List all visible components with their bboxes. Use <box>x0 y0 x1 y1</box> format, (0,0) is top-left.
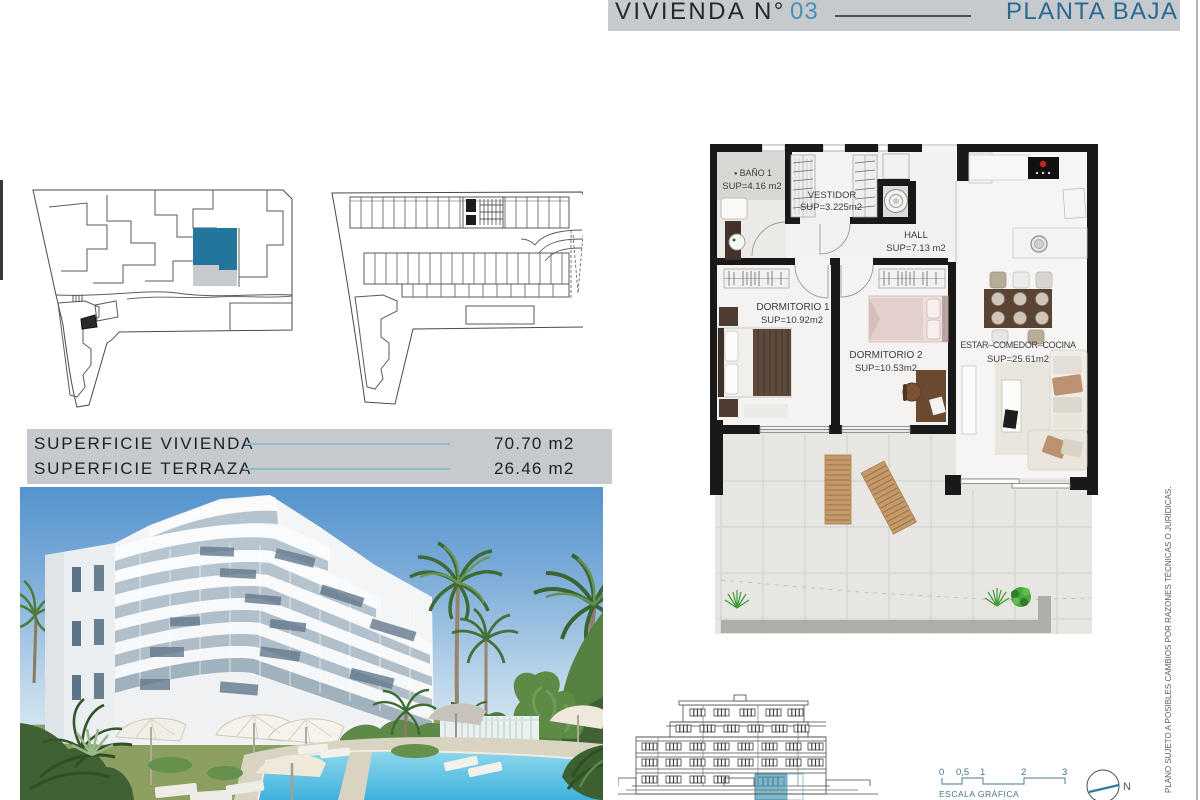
svg-text:N: N <box>1123 781 1131 793</box>
svg-text:ESCALA GRÁFICA: ESCALA GRÁFICA <box>939 789 1019 799</box>
svg-text:0: 0 <box>939 767 944 778</box>
svg-text:ESTAR–COMEDOR–COCINA: ESTAR–COMEDOR–COCINA <box>960 340 1076 350</box>
svg-text:0,5: 0,5 <box>956 767 969 778</box>
svg-text:▪ BAÑO 1: ▪ BAÑO 1 <box>734 168 772 178</box>
svg-text:SUP=4.16 m2: SUP=4.16 m2 <box>722 181 781 192</box>
svg-text:SUP=10.53m2: SUP=10.53m2 <box>855 363 917 374</box>
svg-text:2: 2 <box>1021 767 1026 778</box>
svg-text:SUP=7.13 m2: SUP=7.13 m2 <box>886 243 945 254</box>
svg-text:DORMITORIO 2: DORMITORIO 2 <box>849 350 923 361</box>
svg-text:HALL: HALL <box>904 230 928 241</box>
svg-text:SUP=3.225m2: SUP=3.225m2 <box>800 202 862 213</box>
svg-text:VESTIDOR: VESTIDOR <box>808 190 857 201</box>
svg-text:SUP=10.92m2: SUP=10.92m2 <box>761 315 823 326</box>
svg-text:DORMITORIO 1: DORMITORIO 1 <box>756 302 830 313</box>
svg-text:SUP=25.61m2: SUP=25.61m2 <box>987 354 1049 365</box>
svg-text:3: 3 <box>1062 767 1067 778</box>
svg-text:1: 1 <box>980 767 985 778</box>
